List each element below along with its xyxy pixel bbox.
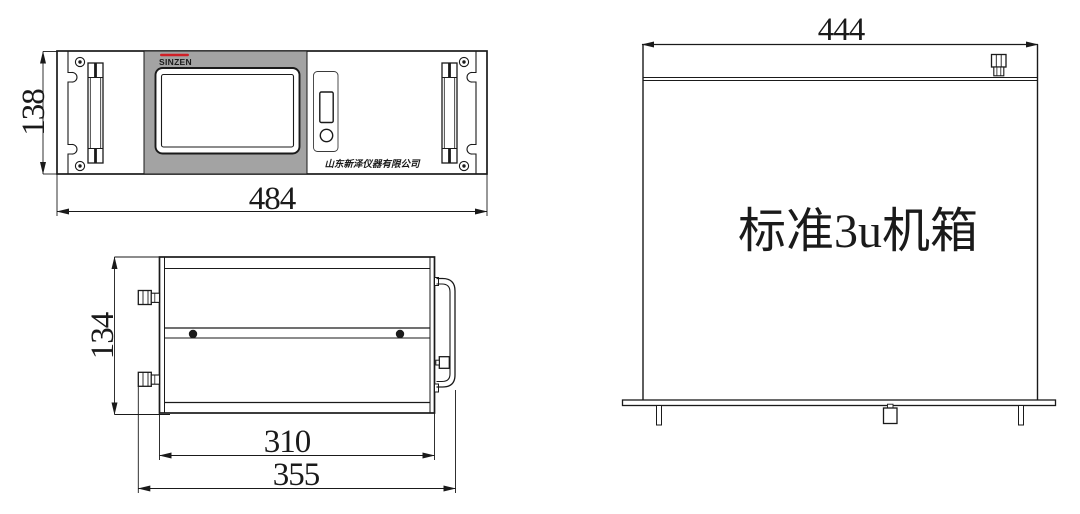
gas-fitting-lower xyxy=(138,372,159,386)
front-view: SINZEN 山东新泽仪器有限公司 138 484 xyxy=(16,51,487,217)
handle-left xyxy=(88,63,103,163)
brand-underline xyxy=(160,54,189,56)
foot-left xyxy=(657,406,662,426)
handle-latch xyxy=(439,357,449,369)
power-button[interactable] xyxy=(320,129,332,141)
dimension-138: 138 xyxy=(16,52,57,175)
rivet-dot xyxy=(189,330,197,338)
rear-view: 444 标准3u机箱 xyxy=(623,12,1056,425)
handle-right xyxy=(442,63,457,163)
engineering-drawing: SINZEN 山东新泽仪器有限公司 138 484 xyxy=(0,0,1080,514)
foot-middle xyxy=(884,408,898,424)
dimension-134: 134 xyxy=(85,257,170,415)
gas-fitting-upper xyxy=(138,291,159,305)
brand-logo: SINZEN xyxy=(159,57,192,67)
carry-handle xyxy=(435,278,456,393)
usb-port[interactable] xyxy=(320,92,333,123)
chassis-label: 标准3u机箱 xyxy=(738,205,978,258)
screw-icon xyxy=(75,57,84,66)
dimension-310: 310 xyxy=(160,413,435,460)
dim-text-484: 484 xyxy=(249,181,296,217)
side-view: 134 310 355 xyxy=(85,257,456,493)
dim-text-355: 355 xyxy=(273,457,320,493)
screw-icon xyxy=(75,161,84,170)
side-outline xyxy=(160,257,435,413)
dimension-484: 484 xyxy=(57,174,487,217)
dim-text-310: 310 xyxy=(264,424,311,460)
top-fitting xyxy=(992,55,1007,76)
dim-text-134: 134 xyxy=(85,312,121,359)
display-screen-inner[interactable] xyxy=(162,75,294,148)
foot-right xyxy=(1019,406,1024,426)
dim-text-444: 444 xyxy=(818,12,865,48)
rivet-dot xyxy=(396,330,404,338)
company-name: 山东新泽仪器有限公司 xyxy=(324,158,421,170)
base-plate xyxy=(623,400,1056,406)
dim-text-138: 138 xyxy=(16,89,52,136)
screw-icon xyxy=(459,57,468,66)
screw-icon xyxy=(459,161,468,170)
